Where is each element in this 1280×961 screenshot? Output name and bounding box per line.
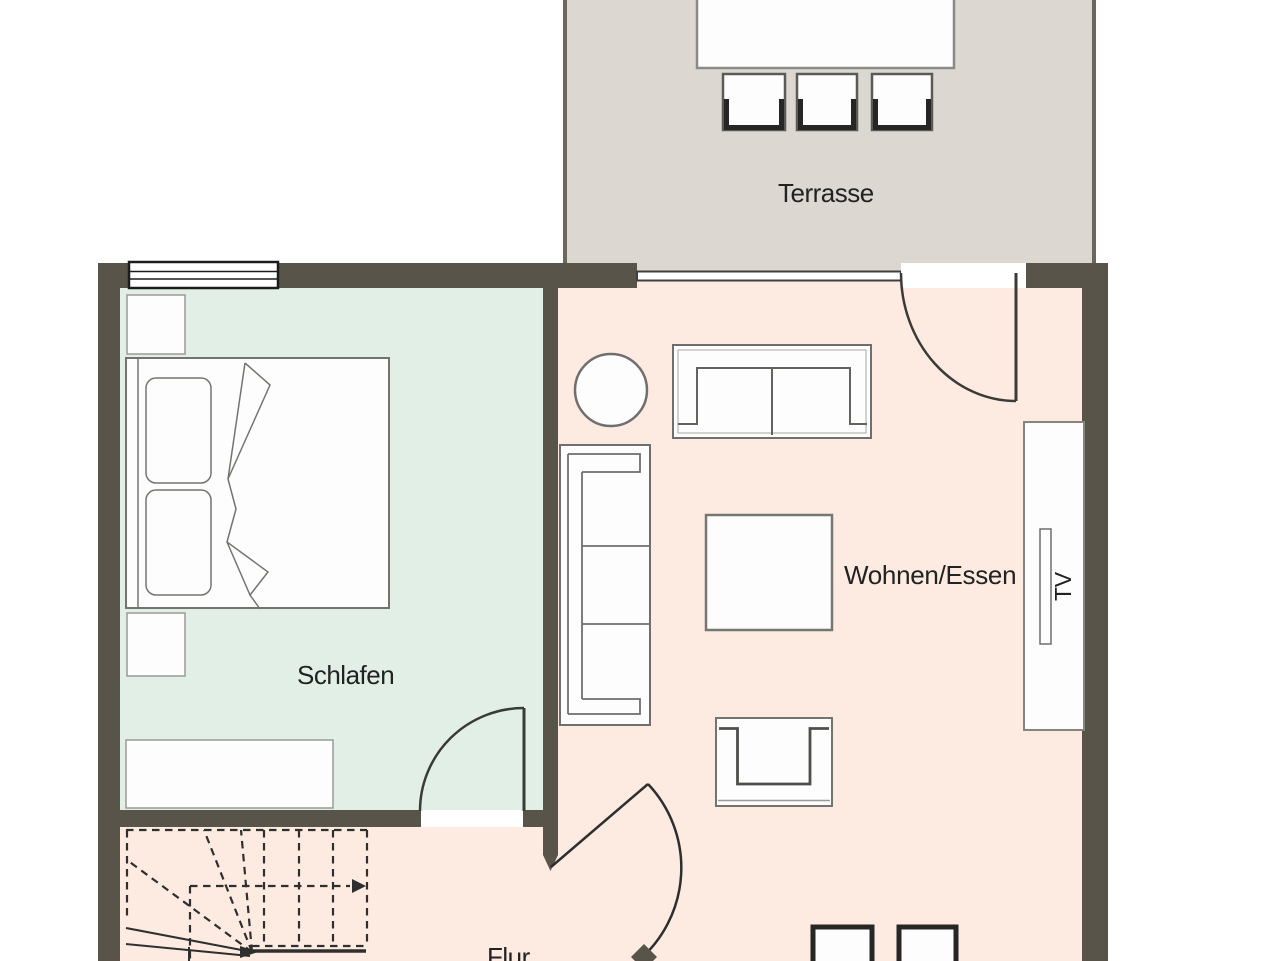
- svg-text:Wohnen/Essen: Wohnen/Essen: [844, 560, 1016, 590]
- svg-text:TV: TV: [1050, 571, 1076, 601]
- svg-text:Terrasse: Terrasse: [778, 178, 874, 208]
- svg-text:Flur: Flur: [487, 942, 531, 961]
- svg-text:Schlafen: Schlafen: [297, 660, 394, 690]
